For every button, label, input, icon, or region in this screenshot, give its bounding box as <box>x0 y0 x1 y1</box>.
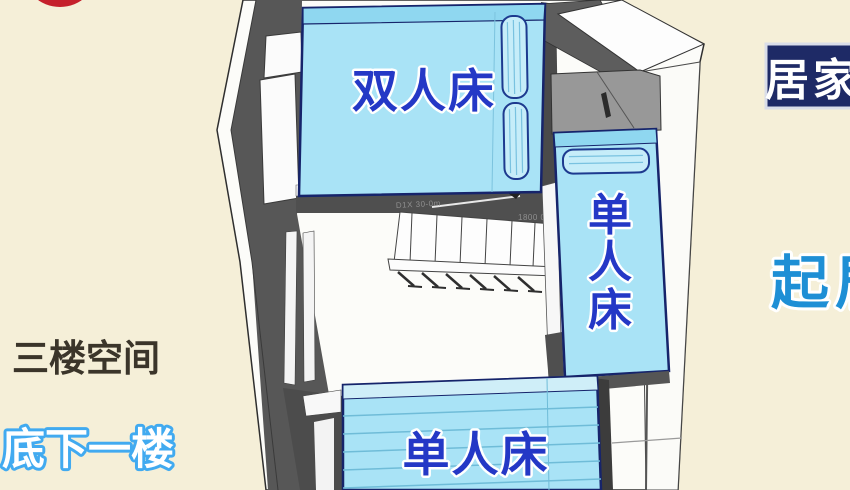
bottom-single-bed: 单人床 <box>343 376 601 490</box>
floor-space-label: 三楼空间 <box>12 338 160 379</box>
lower-floor-label: 底下一楼 <box>2 426 174 474</box>
corner-badge-text: 居家 <box>765 56 850 105</box>
wall-panel <box>284 231 297 385</box>
pillow <box>563 148 649 173</box>
pillow <box>501 16 527 98</box>
right-single-bed-label-char: 人 <box>588 238 632 287</box>
right-single-bed-label-char: 单 <box>588 191 632 240</box>
right-single-bed: 单 人 床 <box>554 129 669 377</box>
wall-panel <box>303 231 315 382</box>
double-bed: 双人床 <box>299 4 545 196</box>
wall-panel <box>314 418 334 490</box>
corner-badge: 居家 <box>765 44 850 108</box>
wall-panel <box>260 74 299 204</box>
wall-panel <box>264 32 302 78</box>
floorplan-canvas: D1X 30-0m 1800 08 双人床 单 <box>0 0 850 490</box>
living-room-label: 起居 <box>771 251 850 316</box>
bottom-single-bed-label: 单人床 <box>403 428 550 481</box>
double-bed-label: 双人床 <box>352 65 496 117</box>
pillow <box>503 103 528 179</box>
floorplan-scene: D1X 30-0m 1800 08 双人床 单 <box>0 0 850 490</box>
right-single-bed-label-char: 床 <box>588 286 632 335</box>
